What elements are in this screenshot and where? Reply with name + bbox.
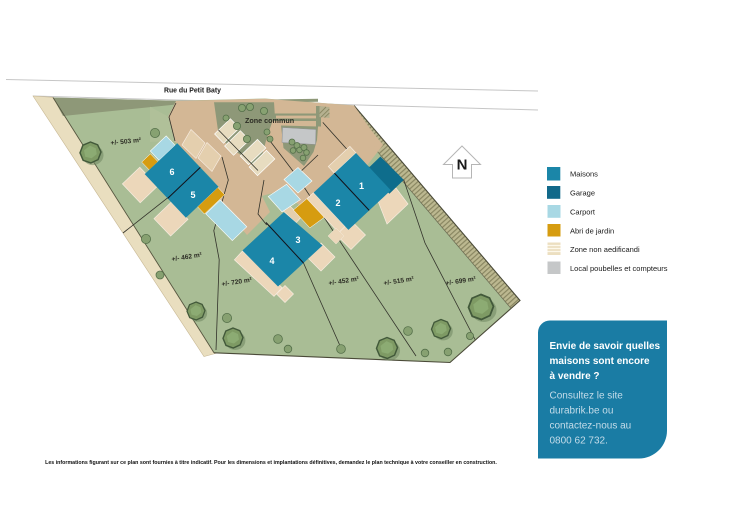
svg-text:Maisons: Maisons bbox=[570, 170, 598, 179]
svg-text:2: 2 bbox=[335, 198, 340, 208]
svg-text:Local poubelles et compteurs: Local poubelles et compteurs bbox=[570, 264, 668, 273]
svg-text:3: 3 bbox=[295, 235, 300, 245]
svg-text:N: N bbox=[457, 157, 468, 174]
svg-text:Garage: Garage bbox=[570, 189, 595, 198]
svg-text:5: 5 bbox=[190, 190, 195, 200]
svg-text:Les informations figurant sur: Les informations figurant sur ce plan so… bbox=[45, 460, 497, 466]
svg-text:Rue du Petit Baty: Rue du Petit Baty bbox=[164, 88, 221, 95]
svg-text:à vendre ?: à vendre ? bbox=[550, 371, 600, 382]
svg-text:0800 62 732.: 0800 62 732. bbox=[550, 436, 608, 447]
svg-text:1: 1 bbox=[359, 181, 364, 191]
svg-text:durabrik.be ou: durabrik.be ou bbox=[550, 406, 614, 417]
svg-text:4: 4 bbox=[269, 256, 274, 266]
svg-text:Zone commun: Zone commun bbox=[245, 116, 294, 125]
svg-text:Abri de jardin: Abri de jardin bbox=[570, 227, 614, 236]
svg-text:Consultez le site: Consultez le site bbox=[550, 391, 624, 402]
svg-text:Carport: Carport bbox=[570, 208, 596, 217]
svg-text:maisons sont encore: maisons sont encore bbox=[550, 356, 650, 367]
svg-text:Zone non aedificandi: Zone non aedificandi bbox=[570, 245, 640, 254]
svg-text:Envie de savoir quelles: Envie de savoir quelles bbox=[550, 341, 661, 352]
svg-text:contactez-nous au: contactez-nous au bbox=[550, 421, 632, 432]
svg-text:6: 6 bbox=[169, 167, 174, 177]
